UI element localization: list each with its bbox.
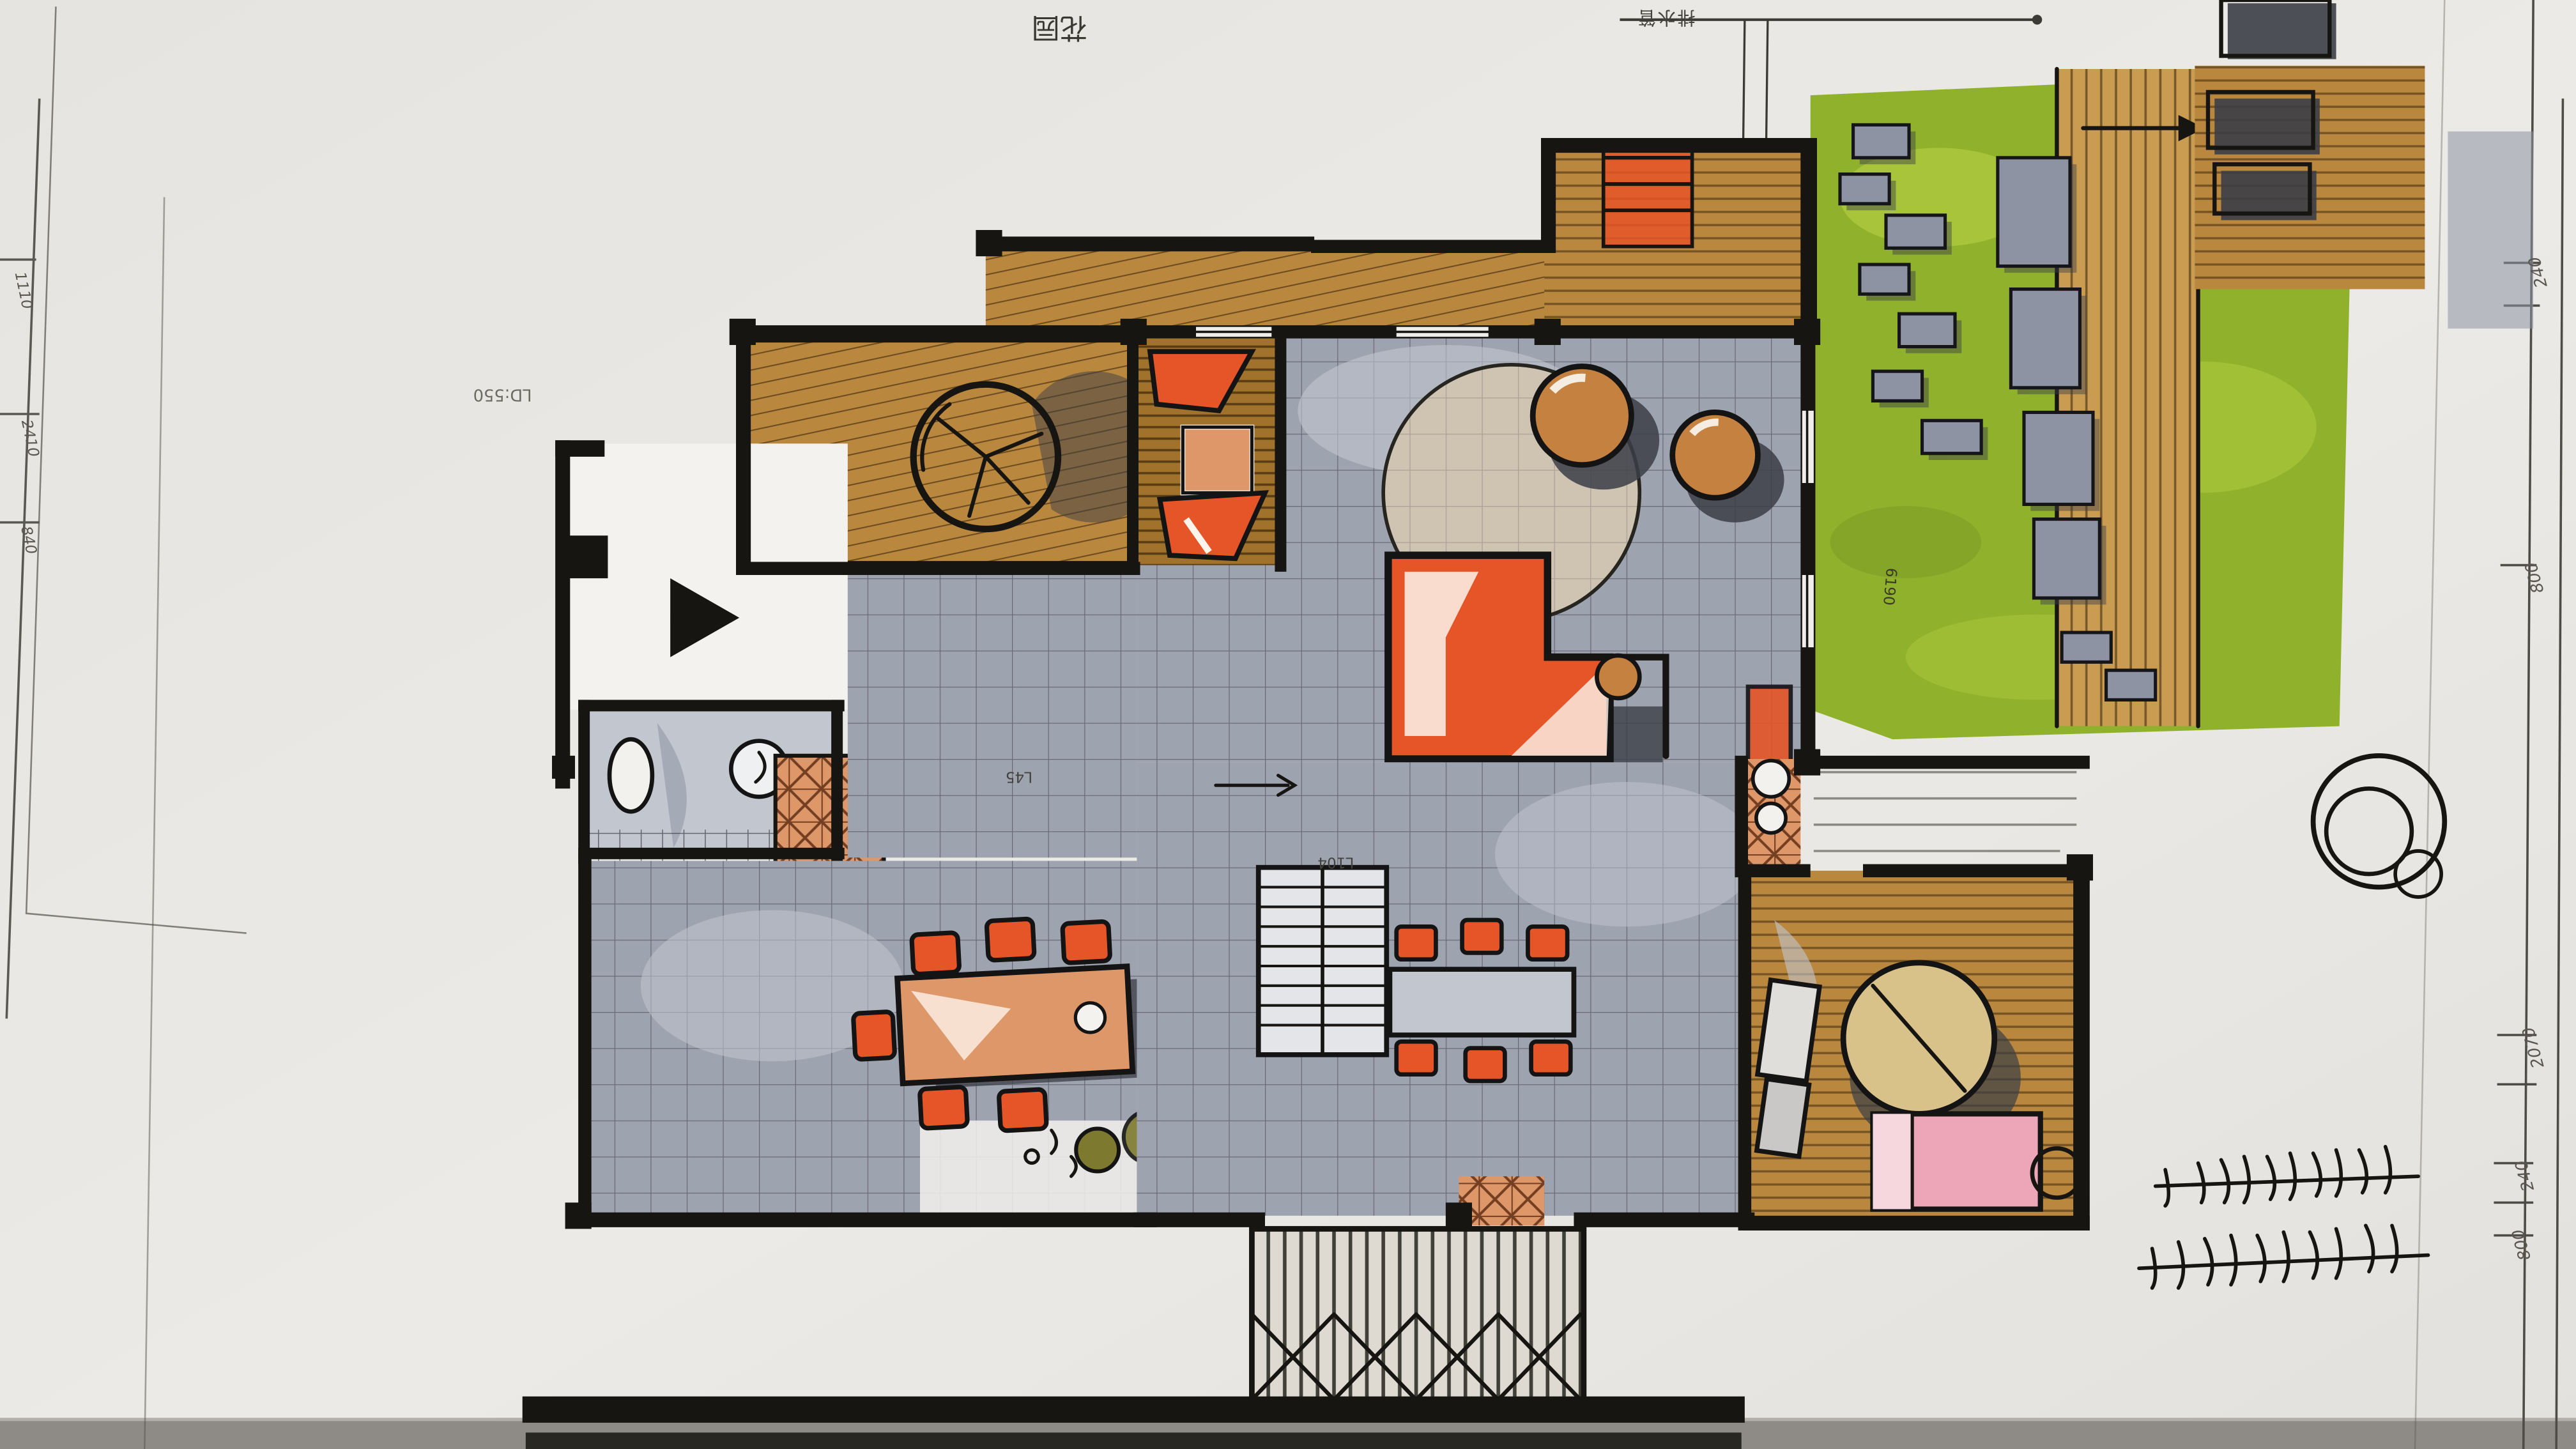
tea-set	[1390, 920, 1574, 1081]
bedroom	[1745, 871, 2081, 1222]
balcony-nook	[1133, 339, 1281, 565]
toilet	[609, 739, 652, 811]
floor-plan-photo: 花园 排水管 LD:550 L45 L104 6190 240 800 2070…	[0, 0, 2576, 1449]
plan-drawing	[0, 0, 2576, 1449]
bed	[1873, 1114, 2040, 1209]
low-table	[1183, 427, 1252, 493]
garden-boardwalk	[2057, 69, 2204, 726]
side-table	[1597, 655, 1639, 698]
family-room	[1137, 759, 1800, 1225]
stairs	[1259, 868, 1387, 1055]
entry-hall	[558, 443, 848, 710]
